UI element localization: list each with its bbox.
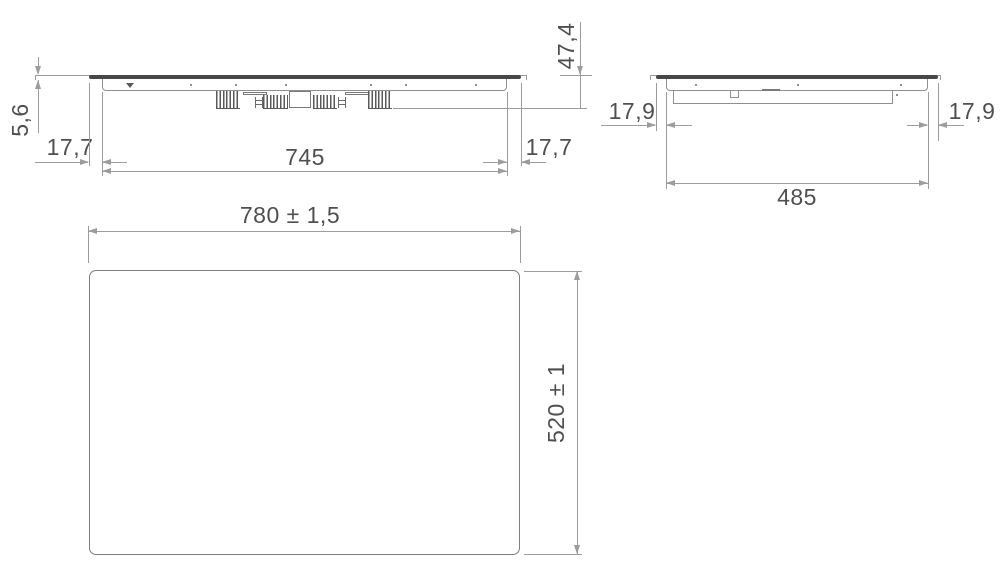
plan-view: 780 ± 1,5 520 ± 1 [0,0,1000,561]
arrowhead [88,228,97,234]
arrowhead [511,228,520,234]
glass-outline [89,270,520,555]
dim-plan-width: 780 ± 1,5 [220,204,360,226]
extension-line [524,554,582,555]
arrowhead [574,545,580,554]
dimension-line [577,271,578,554]
extension-line [520,226,521,263]
technical-drawing: 5,6 17,7 745 17,7 47,4 [0,0,1000,561]
arrowhead [574,271,580,280]
dim-plan-depth: 520 ± 1 [545,343,567,463]
extension-line [524,271,582,272]
extension-line [88,226,89,263]
dimension-line [88,231,520,232]
